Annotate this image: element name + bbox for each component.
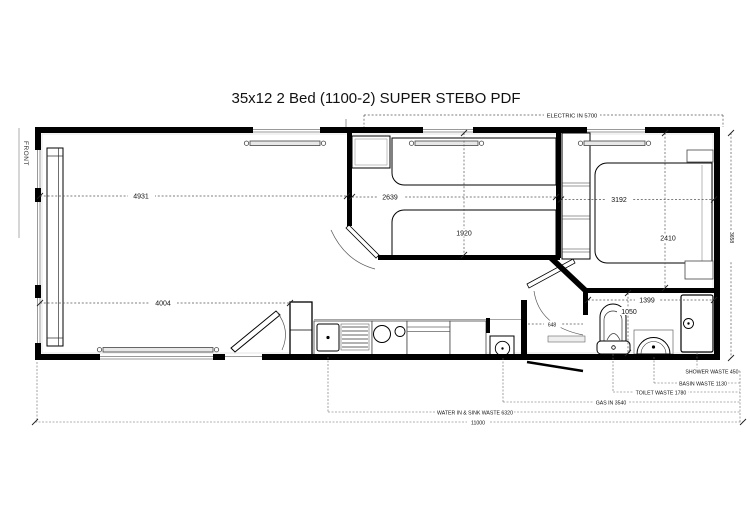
front-sofa [47,148,63,346]
dim-1050: 1050 [621,309,637,316]
bathroom [597,295,713,354]
front-label: FRONT [22,141,29,166]
dim-2410: 2410 [660,236,676,243]
toilet-waste-label: TOILET WASTE 1780 [636,391,687,397]
sink-drain [326,336,329,339]
shower-waste-label: SHOWER WASTE 450 [685,370,738,376]
kitchen-end-stub [486,318,490,333]
basin-waste-label: BASIN WASTE 1130 [679,382,727,388]
dim-line-electric [364,115,723,127]
dim-3658: 3658 [728,232,734,243]
water-in-label: WATER IN & SINK WASTE 6320 [437,411,513,417]
left-wall-seg3 [35,285,41,298]
left-wall-seg2 [35,188,41,202]
dim-3192: 3192 [611,197,627,204]
hob-burner-large [374,326,391,343]
bottom-wall-seg3 [262,354,720,360]
curtain-bar-bedroom1 [409,141,483,146]
curtain-bar-bedroom2 [578,141,650,146]
bathroom-top-wall [583,288,714,293]
bottom-wall-seg2 [213,354,225,360]
floorplan-page: 35x12 2 Bed (1100-2) SUPER STEBO PDF [0,0,750,530]
hob-burner-small [395,327,405,337]
hallway [527,259,585,342]
bottom-wall-seg1 [35,354,100,360]
lounge-bedroom1-wall [347,127,352,226]
dim-4004: 4004 [155,301,171,308]
worktop-unit [450,321,486,355]
gas-in-label: GAS IN 3540 [596,401,627,407]
bedside-shelf-bottom [685,261,713,279]
water-heater-center [501,347,503,349]
shower-valve-center [687,322,689,324]
exterior-step-mark [527,362,583,371]
bedroom2-wardrobe [562,133,590,259]
hallway-left-wall [521,300,527,360]
fridge-unit [407,321,450,355]
dim-648: 648 [548,323,557,329]
basin-drain [652,345,655,348]
lounge [47,148,286,352]
bathroom-left-wall [583,288,588,315]
top-wall-seg1 [35,127,253,133]
bedroom1-door-leaf [346,225,379,258]
dim-4931: 4931 [133,194,149,201]
toilet-cistern [597,341,630,354]
curtain-bar-lounge-top [244,141,325,146]
dim-1920: 1920 [456,231,472,238]
dim-2639: 2639 [382,195,398,202]
bedroom1-bedroom2-wall [556,127,561,258]
top-wall-seg3 [473,127,587,133]
double-bed [595,163,712,263]
top-wall-seg4 [645,127,720,133]
floorplan-drawing: 35x12 2 Bed (1100-2) SUPER STEBO PDF [0,0,750,530]
bedroom2 [562,133,713,279]
top-wall-seg2 [320,127,423,133]
electric-in-label: ELECTRIC IN 5700 [547,114,598,120]
left-wall-seg1 [35,127,41,150]
bathroom-door-swing-arc [534,291,583,335]
entrance-door-leaf [231,311,280,352]
bedroom1 [331,136,556,269]
entrance-door-swing-arc [277,312,286,350]
bedside-shelf-top [687,150,713,162]
dim-11000: 11000 [471,421,485,427]
dim-1399: 1399 [639,298,655,305]
curtain-bar-lounge-bottom [97,348,218,353]
tall-kitchen-unit [290,302,312,355]
hallway-step [548,336,585,342]
bedroom1-wardrobe [352,136,390,168]
plan-title: 35x12 2 Bed (1100-2) SUPER STEBO PDF [231,90,520,107]
bedroom1-bottom-wall [378,255,560,260]
left-wall-seg4 [35,343,41,360]
right-wall [714,127,720,360]
